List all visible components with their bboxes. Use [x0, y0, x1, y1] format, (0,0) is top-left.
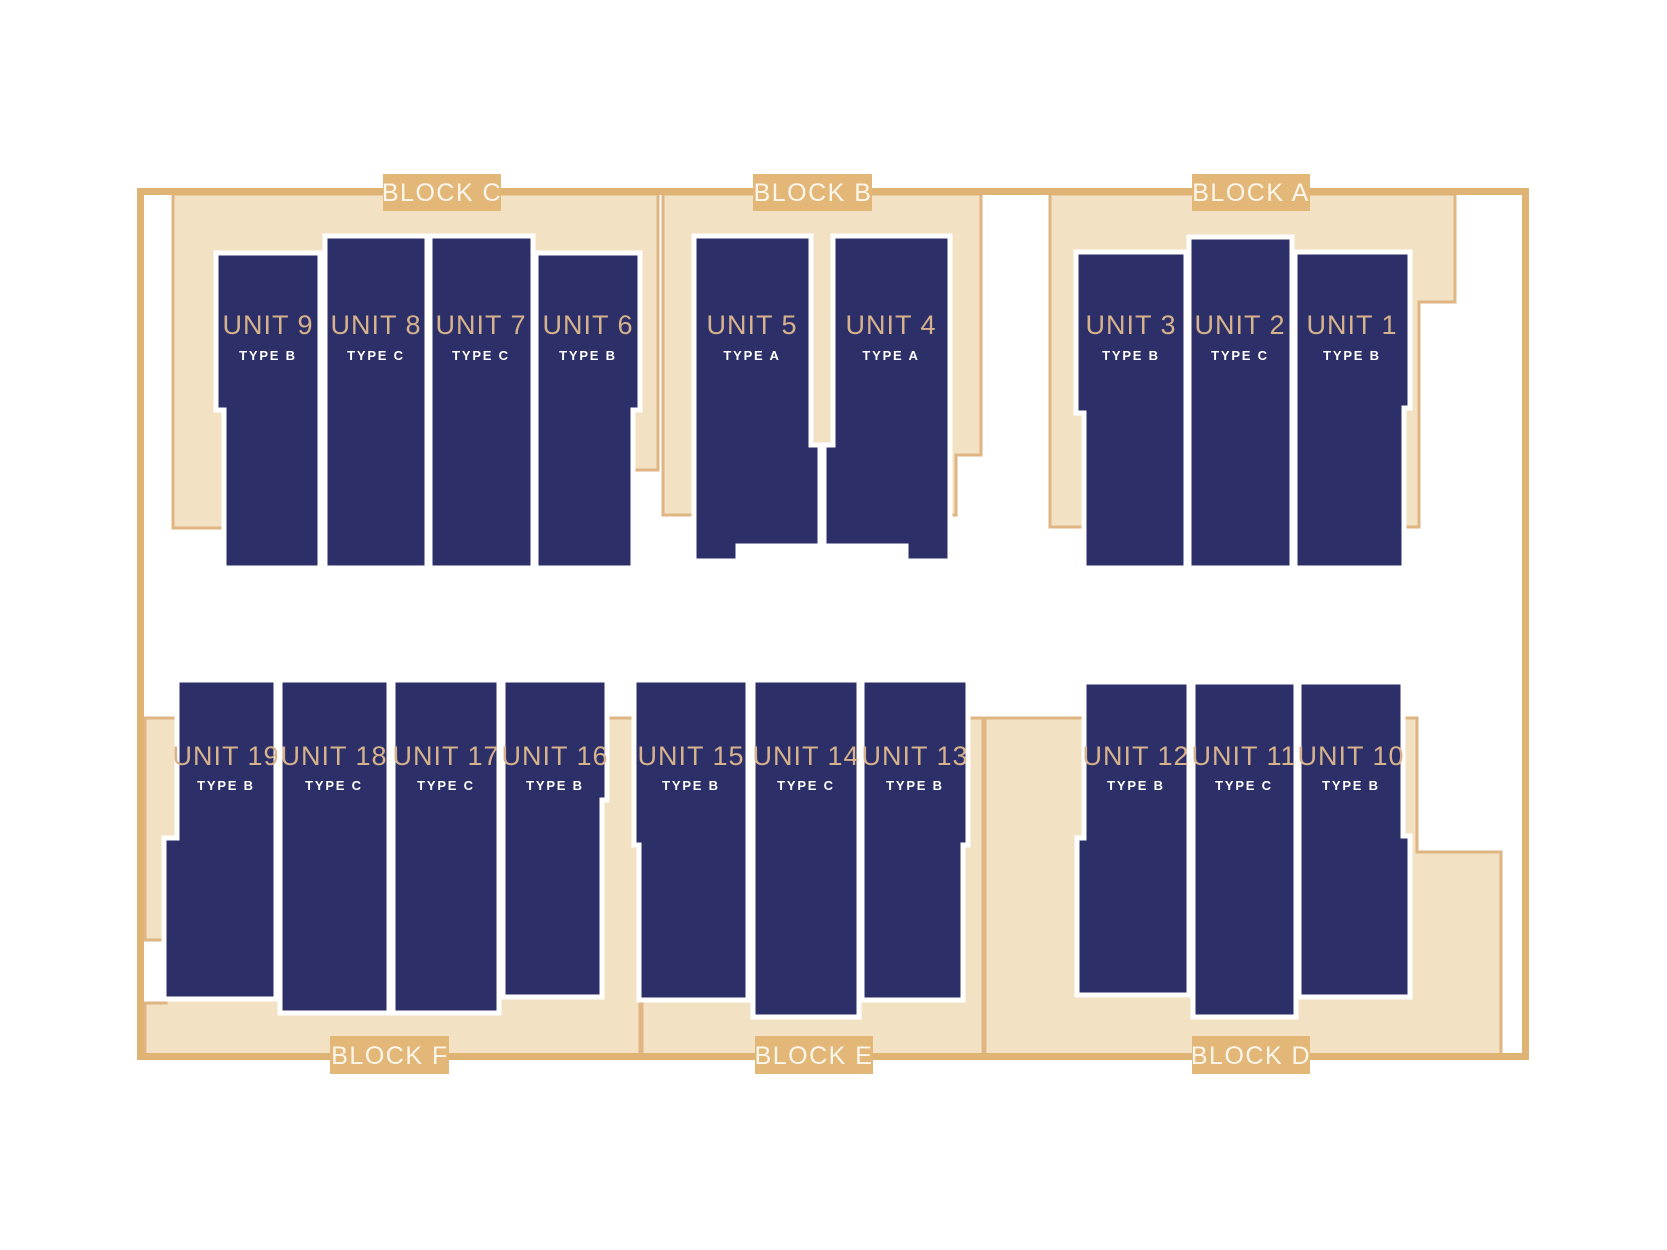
unit-4-type: TYPE A	[862, 348, 919, 363]
unit-2-label: UNIT 2	[1194, 310, 1285, 340]
unit-7-shape[interactable]	[430, 236, 533, 568]
unit-7-label: UNIT 7	[435, 310, 526, 340]
unit-1-type: TYPE B	[1323, 348, 1381, 363]
unit-1-shape[interactable]	[1295, 252, 1410, 568]
unit-6-label: UNIT 6	[542, 310, 633, 340]
unit-18-shape[interactable]	[280, 680, 389, 1013]
unit-6-type: TYPE B	[559, 348, 617, 363]
block-c-tab-label: BLOCK C	[382, 179, 502, 207]
unit-10-shape[interactable]	[1299, 682, 1410, 997]
unit-9[interactable]: UNIT 9 TYPE B	[216, 253, 320, 568]
block-e-tab-label: BLOCK E	[755, 1042, 874, 1070]
unit-17-label: UNIT 17	[392, 741, 499, 771]
unit-18-type: TYPE C	[305, 778, 363, 793]
unit-19-label: UNIT 19	[172, 741, 279, 771]
unit-7[interactable]: UNIT 7 TYPE C	[430, 236, 533, 568]
block-f-tab: BLOCK F	[330, 1036, 449, 1074]
unit-11-shape[interactable]	[1193, 682, 1296, 1017]
unit-15-type: TYPE B	[662, 778, 720, 793]
unit-17[interactable]: UNIT 17 TYPE C	[392, 680, 499, 1013]
site-plan-canvas: UNIT 9 TYPE B UNIT 8 TYPE C UNIT 7 TYPE …	[0, 0, 1667, 1250]
unit-7-type: TYPE C	[452, 348, 510, 363]
unit-8-label: UNIT 8	[330, 310, 421, 340]
unit-2-type: TYPE C	[1211, 348, 1269, 363]
block-a-tab-label: BLOCK A	[1192, 179, 1310, 207]
unit-9-label: UNIT 9	[222, 310, 313, 340]
block-d-tab: BLOCK D	[1191, 1036, 1311, 1074]
unit-14-type: TYPE C	[777, 778, 835, 793]
unit-6-shape[interactable]	[536, 253, 640, 568]
unit-13-type: TYPE B	[886, 778, 944, 793]
block-b-tab: BLOCK B	[753, 174, 872, 211]
block-d-tab-label: BLOCK D	[1191, 1042, 1311, 1070]
unit-14[interactable]: UNIT 14 TYPE C	[752, 680, 859, 1017]
unit-19-shape[interactable]	[164, 680, 276, 999]
unit-16-label: UNIT 16	[501, 741, 608, 771]
block-e-tab: BLOCK E	[755, 1036, 874, 1074]
unit-18-label: UNIT 18	[280, 741, 387, 771]
unit-4-shape[interactable]	[824, 236, 950, 561]
unit-2-shape[interactable]	[1189, 237, 1292, 568]
block-b-tab-label: BLOCK B	[754, 179, 873, 207]
unit-17-shape[interactable]	[393, 680, 499, 1013]
unit-16-type: TYPE B	[526, 778, 584, 793]
unit-13-shape[interactable]	[862, 680, 968, 1000]
block-c-tab: BLOCK C	[382, 174, 502, 211]
unit-19-type: TYPE B	[197, 778, 255, 793]
unit-19[interactable]: UNIT 19 TYPE B	[164, 680, 280, 999]
unit-15-shape[interactable]	[634, 680, 748, 1000]
unit-2[interactable]: UNIT 2 TYPE C	[1189, 237, 1292, 568]
unit-3-type: TYPE B	[1102, 348, 1160, 363]
unit-8[interactable]: UNIT 8 TYPE C	[325, 236, 427, 568]
unit-8-type: TYPE C	[347, 348, 405, 363]
unit-10-type: TYPE B	[1322, 778, 1380, 793]
unit-14-label: UNIT 14	[752, 741, 859, 771]
block-a-tab: BLOCK A	[1192, 174, 1310, 211]
unit-1[interactable]: UNIT 1 TYPE B	[1295, 252, 1410, 568]
unit-17-type: TYPE C	[417, 778, 475, 793]
unit-16[interactable]: UNIT 16 TYPE B	[501, 680, 608, 997]
unit-12-type: TYPE B	[1107, 778, 1165, 793]
unit-10[interactable]: UNIT 10 TYPE B	[1297, 682, 1410, 997]
unit-8-shape[interactable]	[325, 236, 427, 568]
unit-11[interactable]: UNIT 11 TYPE C	[1191, 682, 1296, 1017]
unit-12-shape[interactable]	[1077, 682, 1189, 995]
unit-1-label: UNIT 1	[1306, 310, 1397, 340]
unit-3-label: UNIT 3	[1085, 310, 1176, 340]
unit-9-type: TYPE B	[239, 348, 297, 363]
unit-16-shape[interactable]	[503, 680, 607, 997]
unit-15[interactable]: UNIT 15 TYPE B	[634, 680, 748, 1000]
unit-13[interactable]: UNIT 13 TYPE B	[861, 680, 968, 1000]
unit-14-shape[interactable]	[753, 680, 859, 1017]
unit-13-label: UNIT 13	[861, 741, 968, 771]
unit-5-type: TYPE A	[723, 348, 780, 363]
unit-10-label: UNIT 10	[1297, 741, 1404, 771]
unit-9-shape[interactable]	[216, 253, 320, 568]
unit-4[interactable]: UNIT 4 TYPE A	[824, 236, 950, 561]
unit-12-label: UNIT 12	[1082, 741, 1189, 771]
unit-3-shape[interactable]	[1076, 252, 1186, 568]
block-f-tab-label: BLOCK F	[331, 1042, 448, 1070]
unit-4-label: UNIT 4	[845, 310, 936, 340]
unit-18[interactable]: UNIT 18 TYPE C	[280, 680, 389, 1013]
unit-11-type: TYPE C	[1215, 778, 1273, 793]
unit-6[interactable]: UNIT 6 TYPE B	[536, 253, 640, 568]
site-plan-page: UNIT 9 TYPE B UNIT 8 TYPE C UNIT 7 TYPE …	[0, 0, 1667, 1250]
unit-12[interactable]: UNIT 12 TYPE B	[1077, 682, 1190, 995]
unit-5-shape[interactable]	[694, 236, 820, 561]
unit-5[interactable]: UNIT 5 TYPE A	[694, 236, 820, 561]
unit-11-label: UNIT 11	[1191, 741, 1296, 771]
unit-3[interactable]: UNIT 3 TYPE B	[1076, 252, 1186, 568]
unit-5-label: UNIT 5	[706, 310, 797, 340]
unit-15-label: UNIT 15	[637, 741, 744, 771]
